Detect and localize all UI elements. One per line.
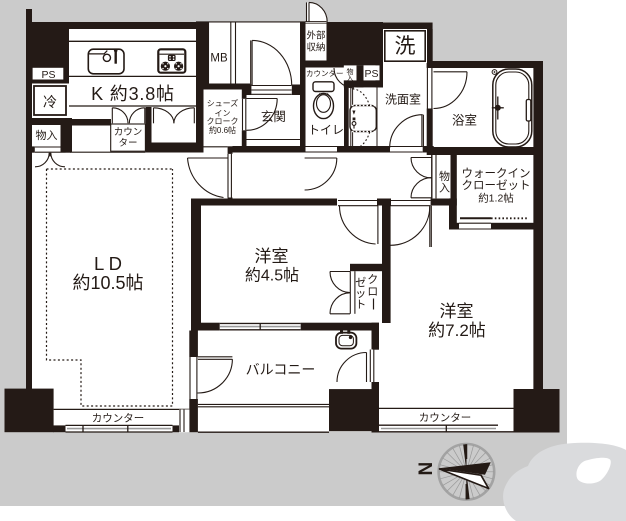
svg-text:カウンター: カウンター [419, 412, 472, 424]
svg-text:ト: ト [355, 299, 366, 311]
svg-text:入: 入 [439, 183, 450, 195]
svg-text:約0.6帖: 約0.6帖 [209, 125, 236, 135]
svg-text:洋室: 洋室 [255, 247, 289, 266]
svg-text:バルコニー: バルコニー [246, 362, 316, 378]
svg-text:入: 入 [347, 75, 354, 83]
svg-text:ロ: ロ [367, 286, 378, 298]
svg-text:浴室: 浴室 [452, 113, 477, 128]
svg-text:収納: 収納 [306, 42, 325, 54]
svg-text:クローゼット: クローゼット [462, 179, 531, 192]
svg-text:ター: ター [118, 138, 137, 149]
svg-text:洋室: 洋室 [440, 302, 474, 321]
svg-text:物入: 物入 [36, 128, 58, 142]
svg-text:約7.2帖: 約7.2帖 [428, 321, 486, 340]
svg-text:冷: 冷 [43, 94, 57, 110]
svg-text:洗面室: 洗面室 [385, 92, 421, 107]
svg-text:PS: PS [41, 69, 55, 81]
svg-text:洗: 洗 [395, 35, 416, 58]
svg-text:PS: PS [364, 68, 378, 80]
svg-text:N: N [416, 462, 437, 476]
svg-text:L D: L D [94, 253, 122, 274]
svg-text:約1.2帖: 約1.2帖 [478, 192, 514, 205]
svg-text:トイレ: トイレ [308, 123, 344, 137]
svg-text:K 約3.8帖: K 約3.8帖 [91, 84, 175, 104]
svg-text:シューズ: シューズ [207, 98, 239, 108]
svg-text:玄関: 玄関 [261, 109, 286, 124]
svg-text:クローク: クローク [207, 117, 239, 126]
svg-text:ク: ク [367, 273, 378, 286]
svg-text:物: 物 [439, 169, 450, 183]
svg-text:MB: MB [210, 53, 228, 65]
svg-text:カウンター: カウンター [92, 412, 145, 424]
svg-text:約10.5帖: 約10.5帖 [72, 273, 143, 293]
svg-text:ウォークイン: ウォークイン [462, 167, 531, 180]
svg-text:カウンター: カウンター [306, 69, 344, 78]
svg-text:カウン: カウン [114, 127, 143, 138]
svg-text:外部: 外部 [306, 30, 325, 42]
svg-text:約4.5帖: 約4.5帖 [245, 267, 299, 285]
